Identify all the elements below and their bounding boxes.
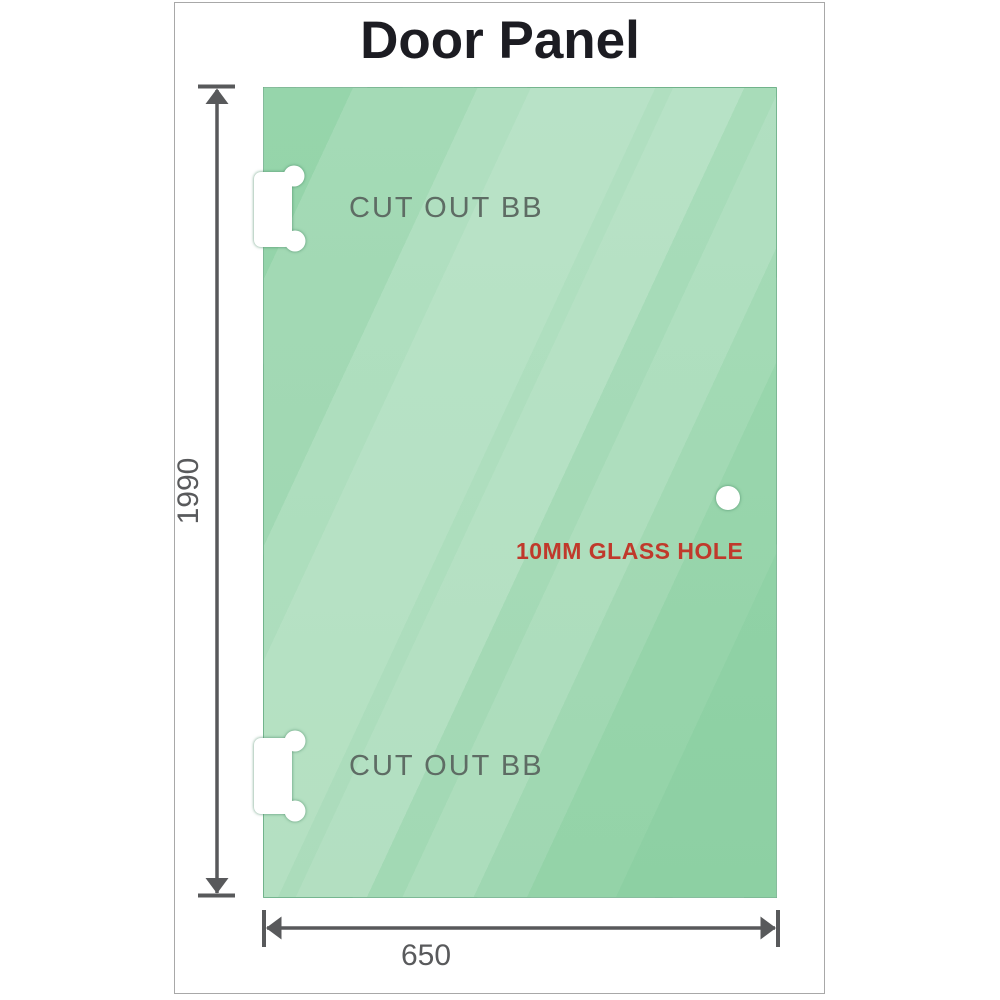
bottom-cutout-lower-hole [285,801,306,822]
arrowhead-right-icon [761,917,777,940]
width-dimension-arrow [264,910,778,947]
top-hinge-cutout [254,166,306,252]
arrowhead-left-icon [266,917,282,940]
glass-hole [716,486,740,510]
top-cutout-label: CUT OUT BB [349,193,544,223]
top-cutout-lower-hole [285,231,306,252]
bottom-hinge-cutout [254,731,306,822]
bottom-cutout-notch [254,738,292,814]
arrowhead-down-icon [206,878,229,894]
width-dimension-value: 650 [381,941,471,971]
bottom-cutout-upper-hole [285,731,306,752]
door-panel-diagram: Door Panel [0,0,1000,1000]
bottom-cutout-label: CUT OUT BB [349,751,544,781]
height-dimension-value: 1990 [174,431,204,551]
top-cutout-upper-hole [284,166,305,187]
diagram-overlay [0,0,1000,1000]
arrowhead-up-icon [206,89,229,105]
glass-hole-label: 10MM GLASS HOLE [516,539,743,563]
